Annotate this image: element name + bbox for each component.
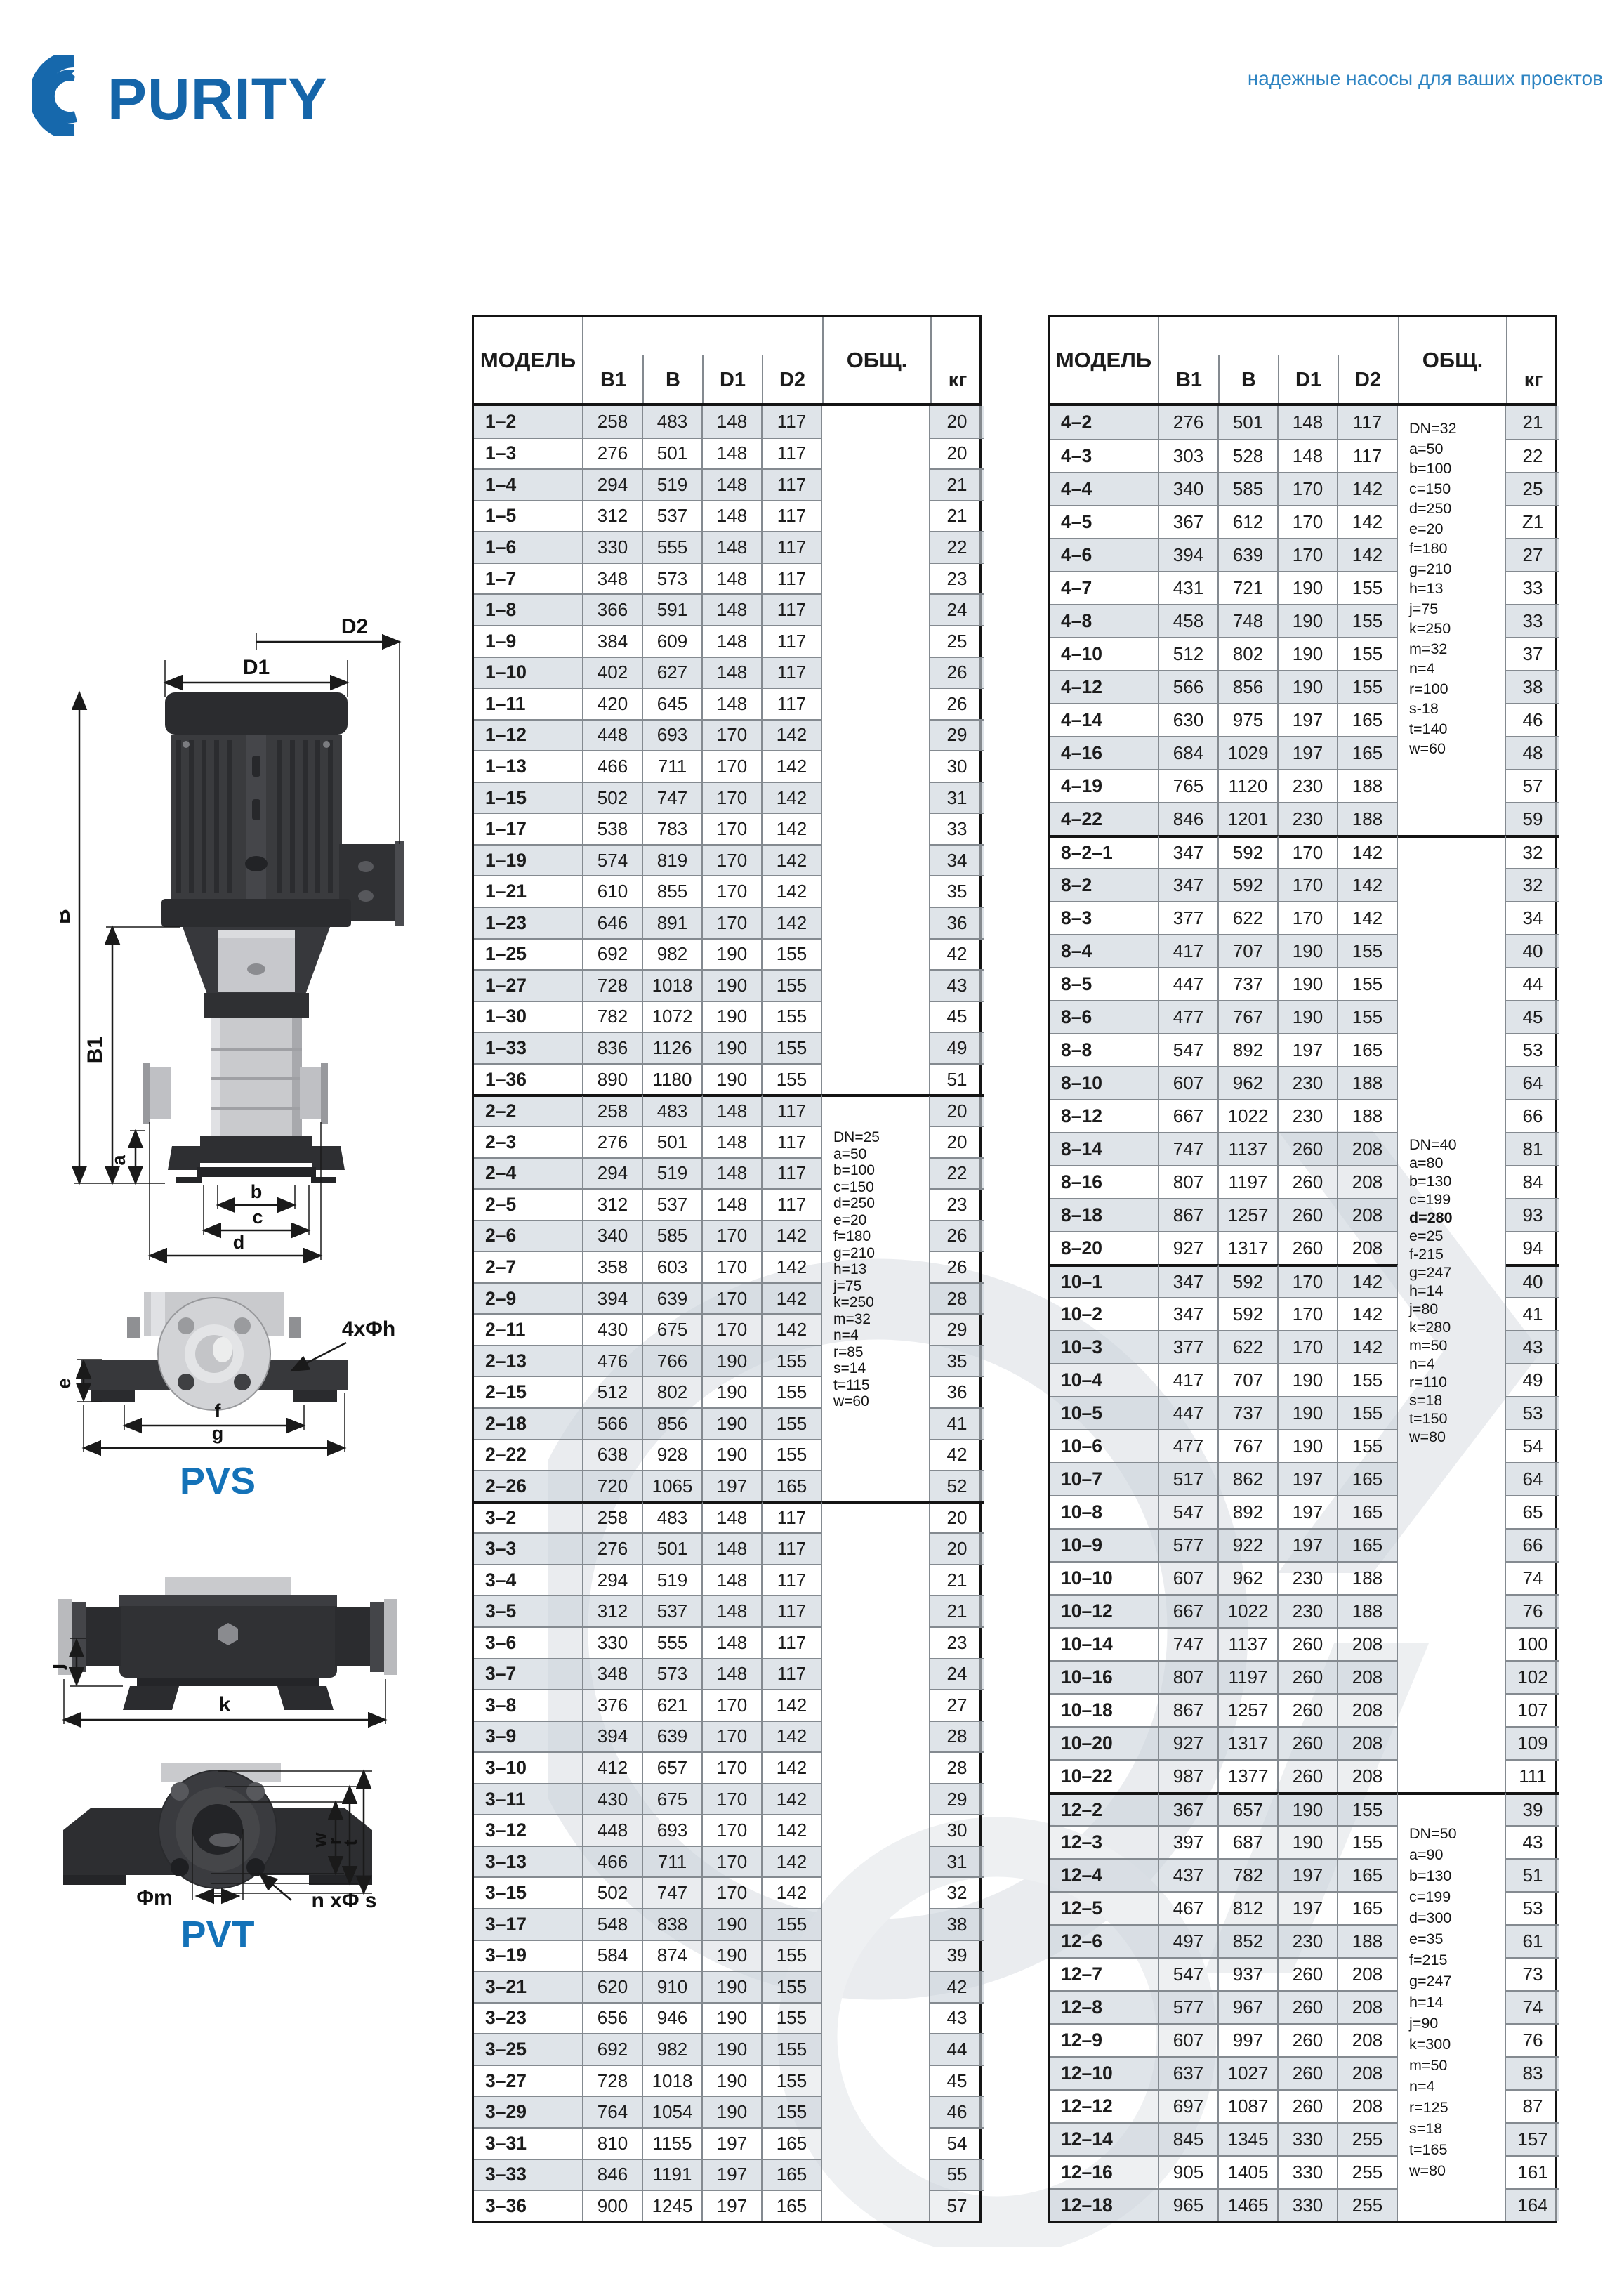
dim-b-cell: 1317: [1219, 1726, 1279, 1759]
pump-front-diagram: B B1 a D1 D2 b c d: [60, 618, 411, 1271]
dim-d1-cell: 190: [703, 1908, 763, 1940]
dim-d2-cell: 155: [763, 1345, 822, 1376]
note-line: b=130: [1409, 1172, 1457, 1190]
dim-b-cell: 573: [643, 563, 703, 594]
dim-b-cell: 591: [643, 593, 703, 625]
note-line: f=180: [1409, 539, 1457, 559]
dim-b1-cell: 607: [1159, 1066, 1219, 1099]
dim-d2-cell: 142: [763, 875, 822, 907]
dim-d1-cell: 170: [703, 1313, 763, 1345]
dim-d2-cell: 117: [763, 1658, 822, 1690]
dim-b1-cell: 584: [583, 1940, 643, 1971]
dim-g: g: [212, 1423, 224, 1444]
dim-d1-cell: 190: [703, 1407, 763, 1439]
dim-phi-m: Φm: [136, 1886, 172, 1909]
kg-cell: 43: [930, 969, 984, 1001]
dim-d2-cell: 142: [763, 813, 822, 844]
kg-cell: 41: [930, 1407, 984, 1439]
dim-b-cell: 928: [643, 1439, 703, 1471]
dim-b-cell: 501: [1219, 406, 1279, 439]
note-line: t=115: [833, 1377, 880, 1394]
dim-b1-cell: 547: [1159, 1495, 1219, 1528]
model-cell: 12–8: [1050, 1990, 1159, 2023]
model-cell: 3–19: [474, 1940, 583, 1971]
dim-b-cell: 1377: [1219, 1759, 1279, 1792]
dim-d1-cell: 170: [1279, 1330, 1338, 1363]
dim-b-cell: 622: [1219, 901, 1279, 934]
dim-d2-cell: 165: [763, 1470, 822, 1501]
dim-b1-cell: 340: [1159, 472, 1219, 505]
kg-cell: 38: [1506, 670, 1559, 703]
dim-d2-cell: 117: [763, 1126, 822, 1157]
dim-d1-cell: 170: [1279, 1264, 1338, 1297]
dim-b-cell: 1029: [1219, 736, 1279, 769]
dim-b1-cell: 417: [1159, 1363, 1219, 1396]
dim-d2-cell: 188: [1338, 1561, 1398, 1594]
dimension-notes: DN=32a=50b=100c=150d=250e=20f=180g=210h=…: [1398, 406, 1457, 759]
model-cell: 1–3: [474, 438, 583, 469]
dim-d1-cell: 260: [1279, 1132, 1338, 1165]
dim-d1-cell: 170: [1279, 538, 1338, 571]
dim-d1-cell: 190: [703, 2033, 763, 2065]
model-cell: 4–14: [1050, 703, 1159, 736]
note-line: m=32: [1409, 639, 1457, 659]
dim-b-cell: 612: [1219, 505, 1279, 538]
dim-b-cell: 767: [1219, 1000, 1279, 1033]
note-line: k=250: [1409, 619, 1457, 639]
dim-d1-cell: 260: [1279, 1198, 1338, 1231]
dim-b1-cell: 728: [583, 969, 643, 1001]
note-line: d=300: [1409, 1907, 1457, 1928]
dim-b-cell: 501: [643, 1126, 703, 1157]
dim-B: B: [60, 909, 74, 924]
dim-b-cell: 519: [643, 1157, 703, 1189]
model-cell: 10–5: [1050, 1396, 1159, 1429]
dim-d2-cell: 142: [763, 750, 822, 782]
dim-b1-cell: 697: [1159, 2089, 1219, 2122]
dim-b1-cell: 845: [1159, 2122, 1219, 2155]
model-cell: 12–2: [1050, 1792, 1159, 1825]
model-cell: 8–2: [1050, 868, 1159, 901]
dim-b1-cell: 630: [1159, 703, 1219, 736]
dim-b-cell: 639: [1219, 538, 1279, 571]
dim-d1-cell: 148: [703, 1626, 763, 1658]
dim-b1-cell: 377: [1159, 1330, 1219, 1363]
dim-b-cell: 967: [1219, 1990, 1279, 2023]
dim-d2-cell: 142: [1338, 505, 1398, 538]
model-cell: 1–33: [474, 1032, 583, 1063]
kg-cell: 29: [930, 719, 984, 751]
model-cell: 10–2: [1050, 1297, 1159, 1330]
dim-b-cell: 537: [643, 1188, 703, 1220]
note-line: e=20: [833, 1212, 880, 1229]
kg-cell: Z1: [1506, 505, 1559, 538]
kg-cell: 53: [1506, 1033, 1559, 1066]
dim-b-cell: 910: [643, 1971, 703, 2002]
dim-d2-cell: 188: [1338, 1066, 1398, 1099]
note-line: n=4: [833, 1327, 880, 1344]
dim-b-cell: 1027: [1219, 2056, 1279, 2089]
kg-cell: 29: [930, 1783, 984, 1815]
kg-cell: 24: [930, 1658, 984, 1690]
kg-cell: 53: [1506, 1396, 1559, 1429]
model-cell: 2–15: [474, 1376, 583, 1407]
dim-b-cell: 962: [1219, 1561, 1279, 1594]
dim-b-cell: 1155: [643, 2127, 703, 2159]
dim-b-cell: 767: [1219, 1429, 1279, 1462]
dim-d2-cell: 155: [763, 2065, 822, 2096]
model-cell: 3–33: [474, 2159, 583, 2190]
dim-d1-cell: 170: [703, 1751, 763, 1783]
header-cell-d2: D2: [763, 317, 822, 403]
dim-d1-cell: 190: [703, 1063, 763, 1095]
kg-cell: 22: [930, 1157, 984, 1189]
dim-b-cell: 1197: [1219, 1165, 1279, 1198]
note-line: w=80: [1409, 2160, 1457, 2181]
brand-name: PURITY: [107, 66, 328, 132]
model-cell: 8–10: [1050, 1066, 1159, 1099]
dim-d1-cell: 190: [1279, 1363, 1338, 1396]
header-cell-kg: кг: [930, 317, 984, 403]
kg-cell: 32: [1506, 868, 1559, 901]
note-line: k=280: [1409, 1318, 1457, 1336]
dim-b1-cell: 548: [583, 1908, 643, 1940]
model-cell: 3–12: [474, 1814, 583, 1846]
kg-cell: 48: [1506, 736, 1559, 769]
kg-cell: 55: [930, 2159, 984, 2190]
dim-d2-cell: 155: [1338, 637, 1398, 670]
kg-cell: 33: [1506, 604, 1559, 637]
dim-d2-cell: 165: [1338, 1033, 1398, 1066]
note-line: t=150: [1409, 1409, 1457, 1428]
model-cell: 10–12: [1050, 1594, 1159, 1627]
kg-cell: 83: [1506, 2056, 1559, 2089]
note-line: s=18: [1409, 2118, 1457, 2139]
kg-cell: 93: [1506, 1198, 1559, 1231]
dim-d2-cell: 165: [763, 2190, 822, 2221]
dim-d2-cell: 142: [763, 1220, 822, 1251]
dim-d2-cell: 117: [763, 657, 822, 688]
dim-b-cell: 711: [643, 750, 703, 782]
dim-d1-cell: 170: [703, 1876, 763, 1908]
dim-b-cell: 783: [643, 813, 703, 844]
dim-b1-cell: 646: [583, 907, 643, 938]
dim-b-cell: 501: [643, 438, 703, 469]
kg-cell: 49: [930, 1032, 984, 1063]
dim-b-cell: 555: [643, 1626, 703, 1658]
dim-b-cell: 621: [643, 1689, 703, 1721]
dim-b-cell: 519: [643, 468, 703, 500]
dim-d2-cell: 155: [1338, 1825, 1398, 1858]
dim-d2-cell: 188: [1338, 802, 1398, 835]
model-cell: 1–17: [474, 813, 583, 844]
header-cell-model: МОДЕЛЬ: [1050, 317, 1159, 403]
model-cell: 12–12: [1050, 2089, 1159, 2122]
dim-b1-cell: 437: [1159, 1858, 1219, 1891]
dim-d1-cell: 197: [1279, 1528, 1338, 1561]
dim-d2-cell: 208: [1338, 1990, 1398, 2023]
dim-D2: D2: [341, 618, 368, 638]
dim-k: k: [219, 1693, 231, 1716]
kg-cell: 45: [930, 2065, 984, 2096]
kg-cell: 32: [930, 1876, 984, 1908]
dim-d1-cell: 190: [1279, 1792, 1338, 1825]
dim-d1-cell: 260: [1279, 1627, 1338, 1660]
model-cell: 1–9: [474, 625, 583, 657]
dim-b1-cell: 276: [1159, 406, 1219, 439]
kg-cell: 64: [1506, 1462, 1559, 1495]
note-line: m=32: [833, 1311, 880, 1328]
kg-cell: 32: [1506, 835, 1559, 868]
dim-d2-cell: 142: [763, 1313, 822, 1345]
note-line: a=50: [1409, 439, 1457, 459]
model-cell: 10–20: [1050, 1726, 1159, 1759]
dim-d1-cell: 170: [703, 719, 763, 751]
dimension-notes: DN=40a=80b=130c=199d=280e=25f-215g=247h=…: [1398, 838, 1457, 1446]
dim-b1-cell: 867: [1159, 1693, 1219, 1726]
note-line: a=80: [1409, 1154, 1457, 1172]
model-cell: 8–6: [1050, 1000, 1159, 1033]
model-cell: 1–10: [474, 657, 583, 688]
dim-b-cell: 946: [643, 2002, 703, 2034]
dim-d2-cell: 155: [763, 1376, 822, 1407]
dim-d1-cell: 230: [1279, 1099, 1338, 1132]
notes-cell: DN=50a=90b=130c=199d=300e=35f=215g=247h=…: [1398, 1792, 1506, 2221]
note-line: a=90: [1409, 1844, 1457, 1865]
dim-b-cell: 501: [643, 1532, 703, 1564]
dim-d1-cell: 170: [1279, 472, 1338, 505]
dim-b1-cell: 448: [583, 1814, 643, 1846]
dim-b1-cell: 512: [583, 1376, 643, 1407]
note-line: s=18: [1409, 1391, 1457, 1409]
dim-d1-cell: 260: [1279, 1231, 1338, 1264]
kg-cell: 21: [1506, 406, 1559, 439]
dim-d1-cell: 170: [703, 1689, 763, 1721]
dim-b-cell: 975: [1219, 703, 1279, 736]
note-line: m=50: [1409, 1336, 1457, 1355]
model-cell: 1–36: [474, 1063, 583, 1095]
dim-b-cell: 838: [643, 1908, 703, 1940]
dim-b1-cell: 258: [583, 1094, 643, 1126]
model-cell: 4–5: [1050, 505, 1159, 538]
note-line: t=140: [1409, 719, 1457, 739]
model-cell: 8–20: [1050, 1231, 1159, 1264]
dim-d1-cell: 197: [1279, 1462, 1338, 1495]
dim-d2-cell: 208: [1338, 2089, 1398, 2122]
dim-b1-cell: 836: [583, 1032, 643, 1063]
model-cell: 2–13: [474, 1345, 583, 1376]
dim-d1-cell: 197: [703, 2159, 763, 2190]
model-cell: 4–16: [1050, 736, 1159, 769]
dim-d2-cell: 208: [1338, 2056, 1398, 2089]
model-cell: 4–3: [1050, 439, 1159, 472]
dim-b1-cell: 430: [583, 1313, 643, 1345]
dim-d2-cell: 155: [763, 1001, 822, 1032]
dim-d1-cell: 190: [1279, 637, 1338, 670]
dim-b1-cell: 376: [583, 1689, 643, 1721]
model-cell: 2–22: [474, 1439, 583, 1471]
dim-d1-cell: 148: [703, 1157, 763, 1189]
kg-cell: 34: [1506, 901, 1559, 934]
dim-b1-cell: 312: [583, 500, 643, 532]
dim-b1-cell: 692: [583, 2033, 643, 2065]
kg-cell: 94: [1506, 1231, 1559, 1264]
kg-cell: 51: [1506, 1858, 1559, 1891]
model-cell: 8–8: [1050, 1033, 1159, 1066]
note-line: s-18: [1409, 699, 1457, 719]
dim-d1-cell: 197: [703, 1470, 763, 1501]
notes-cell: DN=40a=80b=130c=199d=280e=25f-215g=247h=…: [1398, 835, 1506, 1792]
dim-d: d: [233, 1232, 245, 1253]
dim-d1-cell: 148: [703, 1501, 763, 1533]
kg-cell: 20: [930, 1501, 984, 1533]
dim-b1-cell: 905: [1159, 2155, 1219, 2188]
model-cell: 3–6: [474, 1626, 583, 1658]
kg-cell: 44: [930, 2033, 984, 2065]
kg-cell: 33: [1506, 571, 1559, 604]
model-cell: 1–5: [474, 500, 583, 532]
dim-b1-cell: 258: [583, 406, 643, 438]
dim-d1-cell: 148: [703, 1094, 763, 1126]
dim-b1-cell: 547: [1159, 1957, 1219, 1990]
model-cell: 2–2: [474, 1094, 583, 1126]
dim-d1-cell: 190: [1279, 1396, 1338, 1429]
dim-d2-cell: 142: [1338, 835, 1398, 868]
model-cell: 1–8: [474, 593, 583, 625]
model-cell: 2–5: [474, 1188, 583, 1220]
dim-d1-cell: 148: [703, 625, 763, 657]
dim-d1-cell: 330: [1279, 2122, 1338, 2155]
dim-b1-cell: 347: [1159, 868, 1219, 901]
dim-d2-cell: 208: [1338, 1198, 1398, 1231]
note-line: h=14: [1409, 1282, 1457, 1300]
dim-d2-cell: 188: [1338, 1924, 1398, 1957]
note-line: b=100: [1409, 459, 1457, 479]
model-cell: 1–27: [474, 969, 583, 1001]
dim-b-cell: 856: [1219, 670, 1279, 703]
dim-b-cell: 711: [643, 1846, 703, 1877]
dim-b1-cell: 367: [1159, 1792, 1219, 1825]
kg-cell: 35: [930, 875, 984, 907]
model-cell: 2–7: [474, 1251, 583, 1282]
dim-b1-cell: 667: [1159, 1099, 1219, 1132]
dim-d1-cell: 170: [703, 1282, 763, 1314]
model-cell: 8–12: [1050, 1099, 1159, 1132]
header-cell-b: B: [1219, 317, 1279, 403]
dim-d1-cell: 190: [1279, 967, 1338, 1000]
dimension-notes: DN=50a=90b=130c=199d=300e=35f=215g=247h=…: [1398, 1795, 1457, 2181]
kg-cell: 39: [1506, 1792, 1559, 1825]
note-line: g=210: [833, 1245, 880, 1262]
model-cell: 4–2: [1050, 406, 1159, 439]
dim-d2-cell: 142: [763, 1282, 822, 1314]
kg-cell: 74: [1506, 1561, 1559, 1594]
kg-cell: 46: [930, 2096, 984, 2127]
dim-d2-cell: 142: [763, 1689, 822, 1721]
model-cell: 1–30: [474, 1001, 583, 1032]
dim-d1-cell: 197: [703, 2190, 763, 2221]
kg-cell: 27: [1506, 538, 1559, 571]
model-cell: 10–16: [1050, 1660, 1159, 1693]
dim-b1-cell: 294: [583, 1564, 643, 1596]
dim-d1-cell: 148: [703, 438, 763, 469]
dim-d1-cell: 260: [1279, 2089, 1338, 2122]
kg-cell: 61: [1506, 1924, 1559, 1957]
dim-b-cell: 1120: [1219, 769, 1279, 802]
dim-d2-cell: 155: [1338, 1363, 1398, 1396]
header-cell-b1: B1: [583, 317, 643, 403]
kg-cell: 23: [930, 563, 984, 594]
dim-b1-cell: 466: [583, 750, 643, 782]
dim-d1-cell: 260: [1279, 1990, 1338, 2023]
dim-b-cell: 519: [643, 1564, 703, 1596]
dim-d1-cell: 330: [1279, 2188, 1338, 2221]
kg-cell: 42: [930, 938, 984, 970]
dim-d1-cell: 170: [703, 1814, 763, 1846]
dim-b-cell: 609: [643, 625, 703, 657]
kg-cell: 33: [930, 813, 984, 844]
dim-d2-cell: 208: [1338, 1759, 1398, 1792]
dim-b1-cell: 747: [1159, 1132, 1219, 1165]
dim-d2-cell: 155: [1338, 604, 1398, 637]
dim-d2-cell: 208: [1338, 1165, 1398, 1198]
dim-d2-cell: 142: [763, 719, 822, 751]
model-cell: 2–26: [474, 1470, 583, 1501]
dim-b-cell: 982: [643, 938, 703, 970]
dim-d2-cell: 165: [1338, 1462, 1398, 1495]
kg-cell: 20: [930, 406, 984, 438]
model-cell: 1–19: [474, 844, 583, 876]
kg-cell: 26: [930, 1251, 984, 1282]
dim-f: f: [215, 1400, 222, 1421]
dim-b1-cell: 965: [1159, 2188, 1219, 2221]
dim-d2-cell: 208: [1338, 1660, 1398, 1693]
dim-d1-cell: 170: [703, 1220, 763, 1251]
dim-d1-cell: 148: [703, 406, 763, 438]
dim-b-cell: 627: [643, 657, 703, 688]
kg-cell: 21: [930, 468, 984, 500]
dim-b-cell: 675: [643, 1313, 703, 1345]
notes-cell: [822, 406, 930, 1094]
kg-cell: 51: [930, 1063, 984, 1095]
dim-b1-cell: 610: [583, 875, 643, 907]
note-line: e=25: [1409, 1227, 1457, 1245]
dim-d2-cell: 255: [1338, 2122, 1398, 2155]
dim-d1-cell: 190: [1279, 571, 1338, 604]
dim-b-cell: 1197: [1219, 1660, 1279, 1693]
dim-d1-cell: 170: [703, 1783, 763, 1815]
dim-b-cell: 1137: [1219, 1627, 1279, 1660]
note-line: h=13: [833, 1261, 880, 1278]
kg-cell: 52: [930, 1470, 984, 1501]
dim-bolt-pattern: n xΦ s: [312, 1889, 377, 1912]
dim-d2-cell: 117: [763, 438, 822, 469]
kg-cell: 31: [930, 1846, 984, 1877]
dim-d1-cell: 197: [1279, 1891, 1338, 1924]
dim-D1: D1: [243, 656, 270, 679]
dim-d2-cell: 208: [1338, 1132, 1398, 1165]
kg-cell: 76: [1506, 1594, 1559, 1627]
dim-d2-cell: 142: [763, 1783, 822, 1815]
model-cell: 4–19: [1050, 769, 1159, 802]
dim-b-cell: 483: [643, 1094, 703, 1126]
dim-d2-cell: 188: [1338, 1099, 1398, 1132]
kg-cell: 29: [930, 1313, 984, 1345]
dim-b1-cell: 927: [1159, 1231, 1219, 1264]
dim-d1-cell: 260: [1279, 1759, 1338, 1792]
dim-b1-cell: 684: [1159, 736, 1219, 769]
model-cell: 1–4: [474, 468, 583, 500]
